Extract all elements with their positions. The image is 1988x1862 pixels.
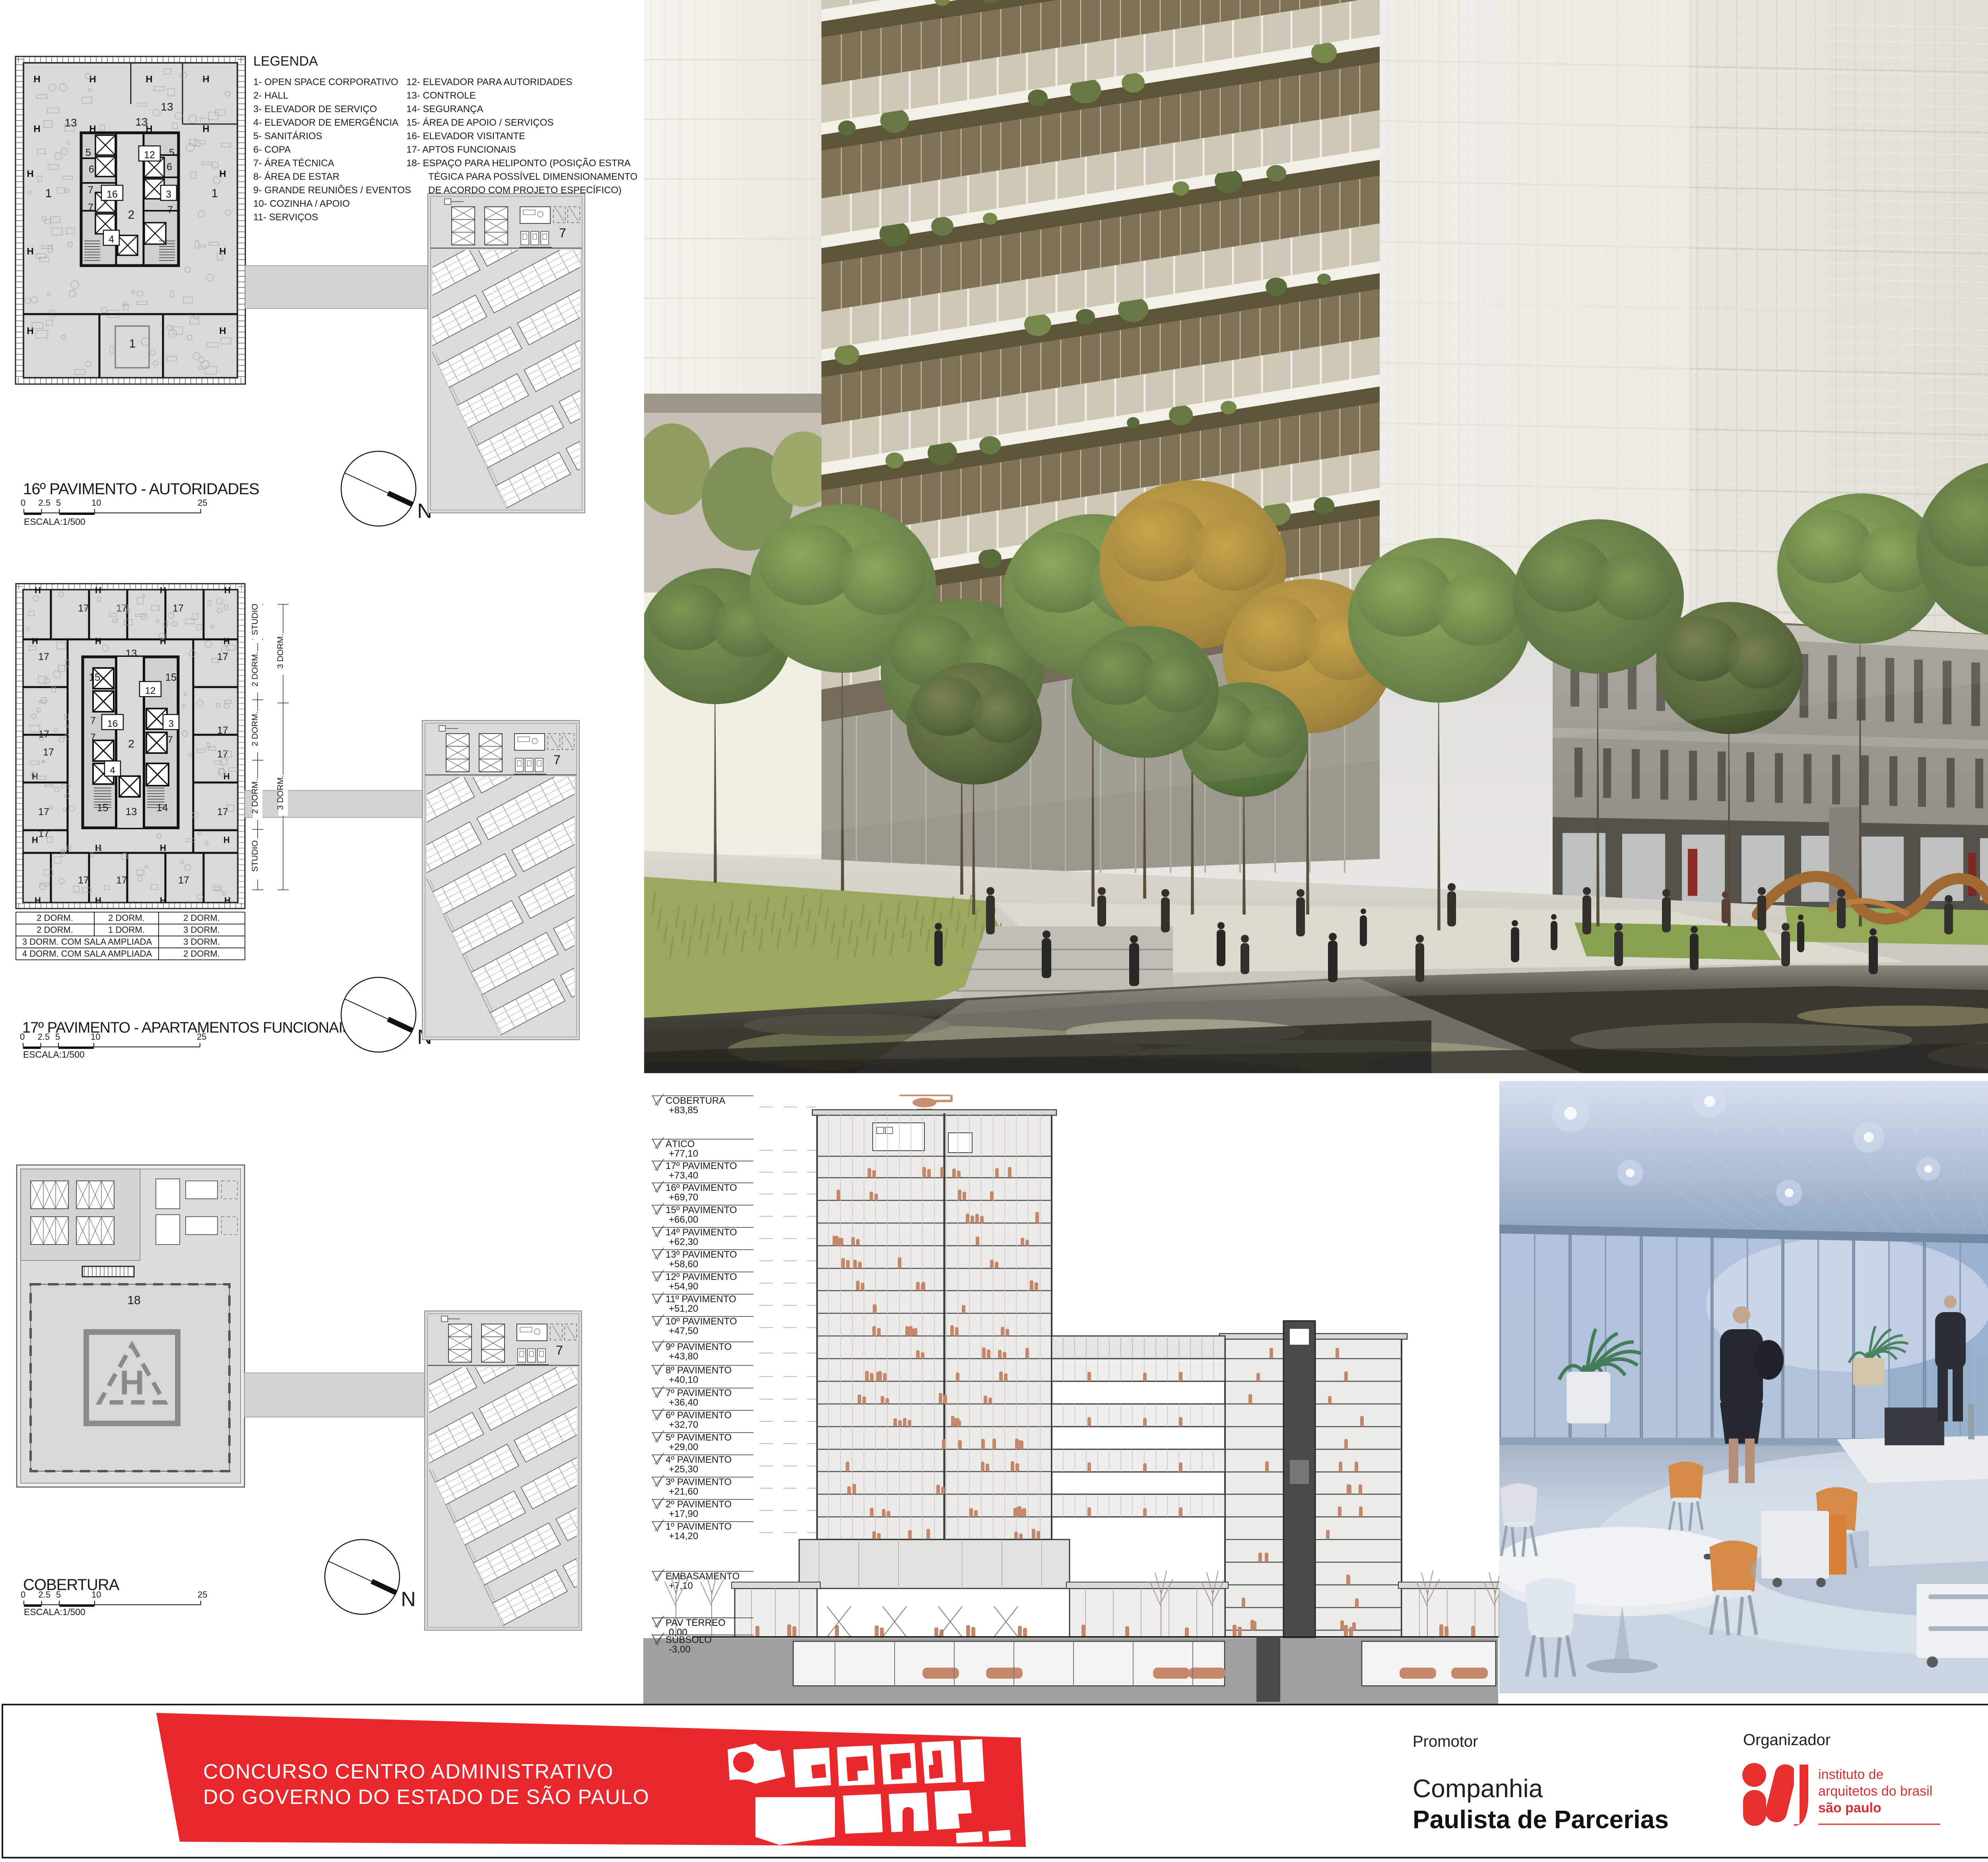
svg-text:2 DORM.: 2 DORM. (37, 913, 73, 923)
svg-text:H: H (160, 895, 166, 905)
svg-text:3 DORM.: 3 DORM. (276, 775, 285, 810)
svg-text:0: 0 (21, 498, 25, 508)
svg-text:+69,70: +69,70 (669, 1192, 698, 1203)
svg-text:7: 7 (167, 734, 173, 745)
svg-text:17: 17 (116, 875, 127, 886)
svg-text:H: H (27, 169, 33, 179)
svg-text:5º PAVIMENTO: 5º PAVIMENTO (666, 1432, 732, 1443)
svg-text:11º PAVIMENTO: 11º PAVIMENTO (666, 1294, 736, 1305)
svg-text:2 DORM.: 2 DORM. (250, 779, 260, 814)
svg-text:16: 16 (107, 718, 118, 729)
svg-text:13: 13 (126, 647, 137, 659)
svg-text:12: 12 (144, 150, 155, 161)
svg-text:9- GRANDE REUNIÕES / EVENTOS: 9- GRANDE REUNIÕES / EVENTOS (253, 184, 411, 196)
svg-text:H: H (219, 326, 226, 336)
svg-text:18: 18 (127, 1294, 140, 1307)
svg-text:3: 3 (168, 718, 173, 729)
svg-text:+17,90: +17,90 (669, 1509, 698, 1519)
svg-text:Organizador: Organizador (1743, 1731, 1831, 1749)
svg-text:4 DORM. COM SALA AMPLIADA: 4 DORM. COM SALA AMPLIADA (22, 949, 152, 959)
svg-text:5: 5 (56, 1590, 61, 1600)
svg-text:12- ELEVADOR PARA AUTORIDADES: 12- ELEVADOR PARA AUTORIDADES (406, 77, 572, 87)
svg-text:2 DORM.: 2 DORM. (183, 913, 220, 923)
svg-text:12: 12 (145, 685, 156, 696)
svg-text:25: 25 (198, 498, 207, 508)
svg-text:TÉGICA PARA POSSÍVEL DIMENSION: TÉGICA PARA POSSÍVEL DIMENSIONAMENTO (428, 171, 637, 182)
svg-text:H: H (202, 74, 209, 85)
svg-text:18- ESPAÇO PARA HELIPONTO (POS: 18- ESPAÇO PARA HELIPONTO (POSIÇÃO ESTRA (406, 158, 631, 169)
svg-text:5: 5 (85, 147, 91, 158)
svg-text:7: 7 (559, 226, 566, 240)
svg-text:17: 17 (38, 651, 49, 662)
svg-text:10º PAVIMENTO: 10º PAVIMENTO (666, 1316, 737, 1327)
svg-text:8- ÁREA DE ESTAR: 8- ÁREA DE ESTAR (253, 171, 340, 182)
svg-text:13: 13 (126, 806, 137, 817)
svg-text:ÁTICO: ÁTICO (666, 1139, 695, 1149)
svg-text:2: 2 (128, 208, 135, 221)
svg-text:7- ÁREA TÉCNICA: 7- ÁREA TÉCNICA (253, 158, 334, 169)
svg-text:2 DORM.: 2 DORM. (250, 652, 260, 687)
svg-text:2.5: 2.5 (39, 1590, 51, 1600)
svg-text:H: H (223, 835, 230, 845)
svg-text:+62,30: +62,30 (669, 1237, 698, 1247)
svg-text:0: 0 (20, 1032, 25, 1042)
svg-text:+25,30: +25,30 (669, 1464, 698, 1475)
svg-text:17: 17 (78, 875, 89, 886)
svg-text:+83,85: +83,85 (669, 1105, 698, 1116)
svg-text:+77,10: +77,10 (669, 1148, 698, 1159)
svg-text:4: 4 (109, 234, 114, 245)
svg-text:6: 6 (89, 164, 94, 175)
svg-text:7: 7 (90, 715, 95, 726)
svg-text:DO GOVERNO DO ESTADO DE SÃO PA: DO GOVERNO DO ESTADO DE SÃO PAULO (203, 1786, 649, 1809)
svg-text:4º PAVIMENTO: 4º PAVIMENTO (666, 1454, 732, 1465)
svg-text:+36,40: +36,40 (669, 1397, 698, 1408)
svg-text:14: 14 (157, 802, 168, 814)
svg-text:17: 17 (217, 806, 228, 817)
svg-text:1 DORM.: 1 DORM. (108, 925, 145, 935)
svg-text:arquitetos do brasil: arquitetos do brasil (1818, 1784, 1932, 1799)
svg-text:PAV TÉRREO: PAV TÉRREO (666, 1617, 726, 1628)
svg-text:H: H (89, 74, 96, 85)
svg-text:25: 25 (197, 1032, 206, 1042)
svg-text:4: 4 (110, 765, 115, 776)
svg-text:2 DORM.: 2 DORM. (37, 925, 73, 935)
svg-text:COBERTURA: COBERTURA (23, 1576, 120, 1594)
svg-text:11- SERVIÇOS: 11- SERVIÇOS (253, 212, 318, 223)
svg-text:10: 10 (91, 1590, 101, 1600)
svg-text:3º PAVIMENTO: 3º PAVIMENTO (666, 1477, 732, 1487)
svg-text:H: H (224, 585, 231, 595)
svg-text:H: H (35, 585, 41, 595)
svg-text:3- ELEVADOR DE SERVIÇO: 3- ELEVADOR DE SERVIÇO (253, 104, 377, 115)
svg-text:H: H (95, 636, 101, 646)
svg-text:STUDIO: STUDIO (250, 604, 260, 635)
svg-text:17: 17 (217, 651, 228, 662)
svg-text:5- SANITÁRIOS: 5- SANITÁRIOS (253, 131, 322, 142)
svg-text:EMBASAMENTO: EMBASAMENTO (666, 1571, 740, 1582)
svg-text:0: 0 (21, 1590, 25, 1600)
svg-text:7: 7 (553, 753, 561, 767)
svg-text:13: 13 (161, 101, 173, 113)
svg-text:H: H (219, 169, 226, 179)
svg-text:17: 17 (116, 603, 127, 614)
svg-text:+66,00: +66,00 (669, 1214, 698, 1225)
svg-text:H: H (223, 636, 230, 646)
svg-text:H: H (27, 246, 33, 257)
svg-text:10: 10 (91, 498, 101, 508)
svg-text:3 DORM.: 3 DORM. (183, 925, 220, 935)
svg-text:instituto de: instituto de (1818, 1767, 1883, 1782)
svg-text:15: 15 (89, 671, 101, 683)
svg-text:1: 1 (129, 337, 136, 350)
svg-text:2.5: 2.5 (38, 1032, 50, 1042)
svg-text:+51,20: +51,20 (669, 1303, 698, 1314)
svg-text:+29,00: +29,00 (669, 1442, 698, 1452)
svg-text:8º PAVIMENTO: 8º PAVIMENTO (666, 1365, 732, 1376)
svg-text:16- ELEVADOR VISITANTE: 16- ELEVADOR VISITANTE (406, 131, 525, 142)
svg-text:5: 5 (56, 498, 61, 508)
svg-text:17: 17 (217, 725, 228, 736)
svg-text:H: H (33, 124, 40, 134)
svg-text:H: H (223, 771, 230, 781)
svg-text:6º PAVIMENTO: 6º PAVIMENTO (666, 1410, 732, 1421)
svg-text:H: H (120, 1364, 144, 1402)
svg-text:10: 10 (91, 1032, 100, 1042)
svg-text:CONCURSO CENTRO ADMINISTRATIVO: CONCURSO CENTRO ADMINISTRATIVO (203, 1760, 613, 1783)
svg-text:LEGENDA: LEGENDA (253, 54, 318, 69)
svg-text:+40,10: +40,10 (669, 1375, 698, 1385)
svg-text:7: 7 (556, 1343, 563, 1357)
svg-text:15- ÁREA DE APOIO / SERVIÇOS: 15- ÁREA DE APOIO / SERVIÇOS (406, 117, 553, 128)
svg-text:2º PAVIMENTO: 2º PAVIMENTO (666, 1499, 732, 1510)
svg-text:+54,90: +54,90 (669, 1281, 698, 1292)
svg-text:5: 5 (169, 147, 175, 158)
svg-text:12º PAVIMENTO: 12º PAVIMENTO (666, 1272, 737, 1282)
svg-text:14º PAVIMENTO: 14º PAVIMENTO (666, 1227, 737, 1238)
svg-text:17: 17 (173, 603, 184, 614)
svg-text:17- APTOS FUNCIONAIS: 17- APTOS FUNCIONAIS (406, 144, 516, 155)
svg-text:16º PAVIMENTO: 16º PAVIMENTO (666, 1182, 737, 1193)
svg-text:+73,40: +73,40 (669, 1170, 698, 1181)
svg-text:2 DORM.: 2 DORM. (183, 949, 220, 959)
svg-text:15: 15 (97, 802, 109, 814)
svg-text:SUBSOLO: SUBSOLO (666, 1635, 712, 1645)
svg-text:COBERTURA: COBERTURA (666, 1095, 725, 1106)
svg-text:ESCALA:1/500: ESCALA:1/500 (24, 516, 85, 527)
svg-text:7: 7 (90, 732, 95, 743)
svg-text:2 DORM.: 2 DORM. (108, 913, 145, 923)
svg-text:+43,80: +43,80 (669, 1351, 698, 1362)
svg-text:H: H (224, 895, 231, 905)
svg-text:7: 7 (167, 204, 173, 216)
svg-text:6: 6 (167, 161, 172, 173)
svg-text:17: 17 (217, 749, 228, 760)
svg-text:Promotor: Promotor (1413, 1733, 1478, 1750)
svg-text:H: H (160, 843, 166, 853)
svg-text:15º PAVIMENTO: 15º PAVIMENTO (666, 1205, 737, 1215)
svg-text:9º PAVIMENTO: 9º PAVIMENTO (666, 1342, 732, 1352)
svg-text:N: N (401, 1588, 416, 1611)
svg-text:H: H (160, 585, 166, 595)
svg-text:15: 15 (165, 671, 177, 683)
svg-text:16º PAVIMENTO - AUTORIDADES: 16º PAVIMENTO - AUTORIDADES (23, 480, 259, 498)
svg-text:H: H (35, 895, 41, 905)
svg-text:H: H (27, 326, 33, 336)
svg-text:17º PAVIMENTO - APARTAMENTOS F: 17º PAVIMENTO - APARTAMENTOS FUNCIONAIS (22, 1019, 352, 1036)
svg-text:7: 7 (88, 202, 93, 213)
svg-text:+32,70: +32,70 (669, 1419, 698, 1430)
svg-text:10- COZINHA / APOIO: 10- COZINHA / APOIO (253, 198, 350, 209)
svg-text:H: H (32, 636, 38, 646)
svg-text:13º PAVIMENTO: 13º PAVIMENTO (666, 1249, 737, 1260)
svg-text:ESCALA:1/500: ESCALA:1/500 (23, 1049, 85, 1060)
svg-text:+47,50: +47,50 (669, 1326, 698, 1336)
svg-text:7: 7 (88, 184, 93, 196)
svg-text:13: 13 (64, 116, 77, 129)
svg-text:17: 17 (38, 828, 49, 839)
svg-text:16: 16 (107, 189, 118, 200)
svg-text:H: H (95, 585, 101, 595)
svg-text:2: 2 (128, 738, 134, 750)
svg-text:H: H (32, 835, 38, 845)
svg-text:3 DORM.: 3 DORM. (183, 937, 220, 947)
svg-text:são paulo: são paulo (1818, 1800, 1881, 1815)
svg-text:+21,60: +21,60 (669, 1486, 698, 1497)
svg-text:H: H (33, 74, 40, 85)
svg-text:-3,00: -3,00 (669, 1644, 691, 1655)
svg-text:+58,60: +58,60 (669, 1259, 698, 1270)
svg-text:7º PAVIMENTO: 7º PAVIMENTO (666, 1388, 732, 1398)
svg-text:6- COPA: 6- COPA (253, 144, 291, 155)
svg-text:STUDIO: STUDIO (250, 840, 260, 872)
svg-text:17: 17 (178, 875, 189, 886)
svg-text:4- ELEVADOR DE EMERGÊNCIA: 4- ELEVADOR DE EMERGÊNCIA (253, 117, 398, 128)
svg-text:25: 25 (198, 1590, 207, 1600)
svg-text:17: 17 (38, 806, 49, 817)
svg-text:H: H (146, 124, 152, 134)
svg-text:1: 1 (212, 187, 218, 200)
svg-text:+14,20: +14,20 (669, 1531, 698, 1542)
svg-text:H: H (89, 124, 96, 134)
svg-text:1: 1 (45, 187, 52, 200)
svg-text:Companhia: Companhia (1413, 1774, 1543, 1803)
svg-text:3: 3 (166, 189, 171, 200)
svg-text:2- HALL: 2- HALL (253, 90, 288, 101)
svg-text:17º PAVIMENTO: 17º PAVIMENTO (666, 1161, 737, 1171)
svg-text:H: H (95, 895, 101, 905)
svg-text:ESCALA:1/500: ESCALA:1/500 (24, 1607, 85, 1617)
svg-text:2.5: 2.5 (39, 498, 51, 508)
svg-text:17: 17 (43, 747, 54, 758)
svg-text:13- CONTROLE: 13- CONTROLE (406, 90, 476, 101)
svg-text:1º PAVIMENTO: 1º PAVIMENTO (666, 1521, 732, 1532)
svg-text:H: H (146, 74, 152, 85)
svg-text:3 DORM.: 3 DORM. (276, 634, 285, 669)
svg-text:3 DORM. COM SALA AMPLIADA: 3 DORM. COM SALA AMPLIADA (22, 937, 152, 947)
svg-text:2 DORM.: 2 DORM. (250, 711, 260, 746)
svg-text:Paulista de Parcerias: Paulista de Parcerias (1413, 1805, 1669, 1834)
svg-text:14- SEGURANÇA: 14- SEGURANÇA (406, 104, 483, 115)
svg-text:1- OPEN SPACE CORPORATIVO: 1- OPEN SPACE CORPORATIVO (253, 77, 398, 87)
svg-text:5: 5 (55, 1032, 60, 1042)
